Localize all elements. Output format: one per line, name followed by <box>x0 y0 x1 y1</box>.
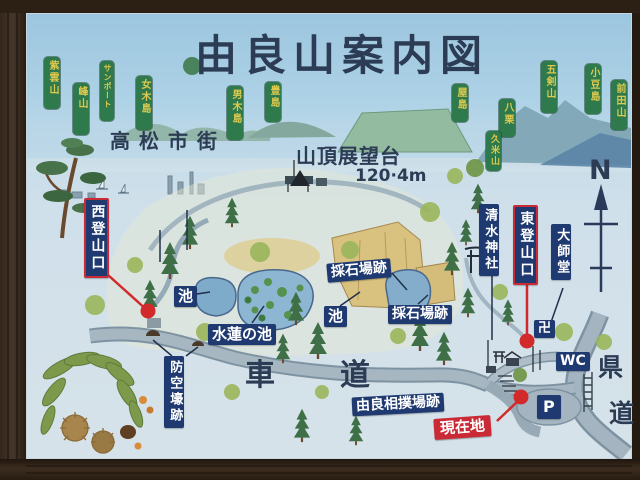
pref-road-label-1: 県 <box>598 355 623 380</box>
pond-right-label: 池 <box>324 306 347 327</box>
peak-label-shiunzan: 紫雲山 <box>44 57 60 109</box>
peak-label-teshima: 豊島 <box>265 82 281 122</box>
daishido-label: 大師堂 <box>551 224 571 280</box>
peak-label-mineyama: 峰山 <box>73 83 89 135</box>
peak-label-shodoshima: 小豆島 <box>585 64 601 114</box>
summit-elevation-label: 120·4m <box>355 168 427 185</box>
current-location-dot <box>514 390 529 405</box>
peak-label-megijima: 女木島 <box>136 76 152 130</box>
signboard-photo: 由良山案内図 紫雲山 峰山 サンポート 女木島 男木島 豊島 屋島 五剣山 小豆… <box>0 0 640 480</box>
air-raid-shelter-label: 防空壕跡 <box>164 356 184 428</box>
peak-label-yakuri: 八栗 <box>499 99 515 137</box>
shimizu-shrine-label: 清水神社 <box>479 204 499 276</box>
pref-road-label-2: 道 <box>609 401 634 426</box>
city-label: 高松市街 <box>110 131 226 151</box>
peak-label-yashima: 屋島 <box>452 84 468 122</box>
quarry-lower-label: 採石場跡 <box>388 305 452 324</box>
compass-n-label: N <box>589 157 612 184</box>
parking-label: P <box>537 395 561 419</box>
summit-name-label: 山頂展望台 <box>296 146 401 166</box>
peak-label-gokenzan: 五剣山 <box>541 61 557 113</box>
temple-mark-label: 卍 <box>534 320 555 338</box>
lily-pond-label: 水蓮の池 <box>208 324 276 345</box>
peak-label-sunport: サンポート <box>100 61 114 121</box>
east-trailhead-label: 東登山口 <box>513 205 538 285</box>
west-trailhead-dot <box>141 304 156 319</box>
west-trailhead-label: 西登山口 <box>84 198 109 278</box>
steps-icon <box>584 372 592 412</box>
toilet-label: WC <box>556 352 590 371</box>
east-trailhead-dot <box>520 334 535 349</box>
current-location-label: 現在地 <box>433 415 491 440</box>
peak-label-kumeyama: 久米山 <box>486 131 501 171</box>
pond-left-label: 池 <box>174 286 197 307</box>
peak-label-ogijima: 男木島 <box>227 86 243 140</box>
car-road-label-1: 車 <box>245 361 275 391</box>
peak-label-maedayama: 前田山 <box>611 80 627 130</box>
car-road-label-2: 道 <box>340 361 370 391</box>
sign-title: 由良山案内図 <box>186 22 498 83</box>
